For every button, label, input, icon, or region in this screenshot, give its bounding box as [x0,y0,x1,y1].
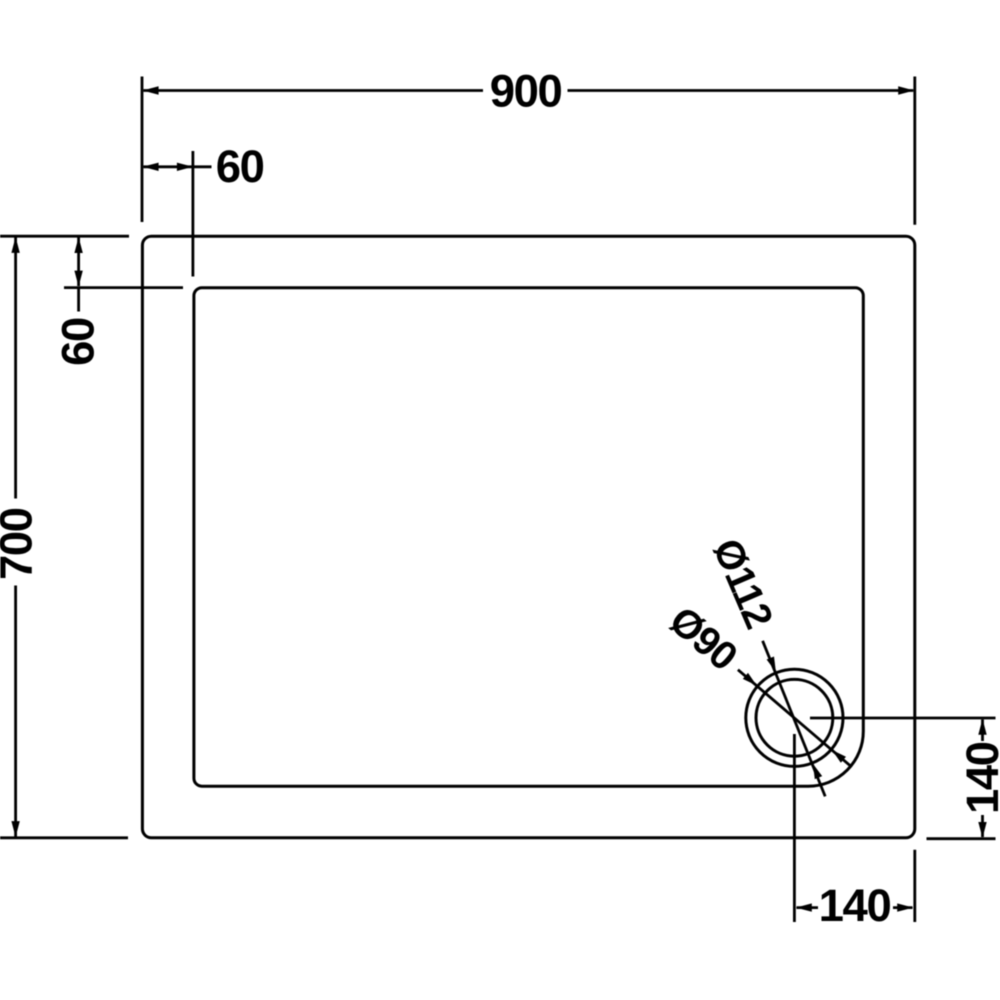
svg-text:700: 700 [0,508,42,580]
svg-text:140: 140 [957,742,1000,814]
svg-text:900: 900 [490,65,562,116]
svg-text:60: 60 [53,318,104,366]
svg-text:140: 140 [819,880,891,931]
svg-text:60: 60 [216,141,264,192]
